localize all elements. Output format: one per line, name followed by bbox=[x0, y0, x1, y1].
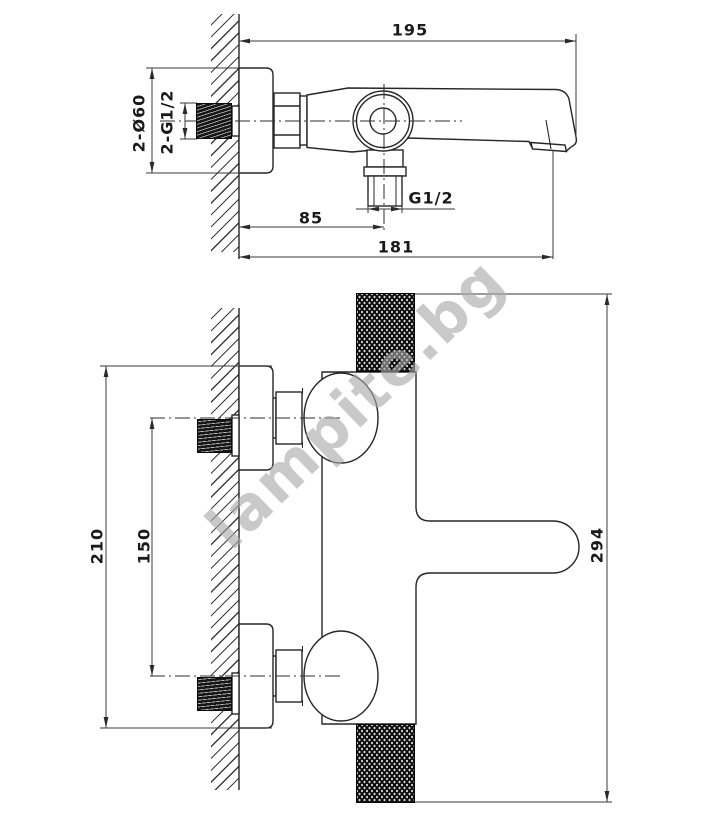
dim-label-inlet-thread: 2-G1/2 bbox=[158, 89, 177, 154]
connector-neck-bottom bbox=[272, 656, 276, 696]
aerator-tick bbox=[546, 120, 551, 149]
valve-cap-hole bbox=[370, 108, 396, 134]
escutcheon-front-top bbox=[239, 366, 273, 470]
escutcheon-front-bottom bbox=[239, 624, 273, 728]
arrowhead bbox=[605, 791, 610, 802]
dim-label-inlet-spacing: 150 bbox=[135, 528, 154, 564]
ball-joint-top bbox=[304, 373, 378, 463]
dim-label-outlet-offset: 85 bbox=[299, 209, 323, 228]
knurled-handle-bottom bbox=[356, 724, 415, 803]
ball-joint-bottom bbox=[304, 631, 378, 721]
connector-neck-top bbox=[272, 398, 276, 438]
inlet-nipple-front-bottom bbox=[197, 677, 232, 711]
connector-block-bottom bbox=[276, 650, 302, 702]
front-view-object bbox=[232, 308, 579, 790]
aerator bbox=[531, 143, 567, 152]
escutcheon-side bbox=[239, 68, 273, 173]
arrowhead bbox=[183, 103, 188, 114]
dim-label-outlet-thread: G1/2 bbox=[408, 189, 453, 208]
arrowhead bbox=[150, 418, 155, 429]
arrowhead bbox=[104, 366, 109, 377]
arrowhead bbox=[183, 128, 188, 139]
arrowhead bbox=[150, 665, 155, 676]
arrowhead bbox=[239, 39, 250, 44]
spout-body bbox=[307, 88, 576, 152]
dim-label-total-projection: 195 bbox=[392, 21, 428, 40]
eccentric-nut bbox=[274, 93, 300, 148]
arrowhead bbox=[239, 255, 250, 260]
inlet-nipple-side bbox=[196, 103, 232, 139]
technical-drawing-canvas: 195 85 181 G1/2 2-Ø60 2-G1/2 210 150 294… bbox=[0, 0, 705, 835]
dim-label-escutcheon-diameter: 2-Ø60 bbox=[130, 94, 149, 153]
arrowhead bbox=[150, 162, 155, 173]
knurled-handle-top bbox=[356, 293, 415, 372]
valve-cap-ring bbox=[357, 95, 410, 148]
outlet-flange bbox=[364, 167, 406, 176]
arrowhead bbox=[239, 225, 250, 230]
valve-cap-outer bbox=[353, 91, 413, 151]
dimension-arrows bbox=[104, 39, 610, 802]
connector-block-top bbox=[276, 392, 302, 444]
arrowhead bbox=[542, 255, 553, 260]
side-view-object bbox=[232, 14, 576, 259]
dim-label-body-length: 294 bbox=[588, 527, 607, 563]
dim-label-spout-reach: 181 bbox=[378, 238, 414, 257]
body-bar bbox=[322, 372, 579, 724]
faucet-linework bbox=[0, 0, 705, 835]
arrowhead bbox=[391, 207, 402, 212]
wall-hatch-front-view bbox=[211, 308, 239, 790]
arrowhead bbox=[605, 294, 610, 305]
dimension-lines bbox=[100, 34, 612, 802]
arrowhead bbox=[373, 225, 384, 230]
inlet-nipple-front-top bbox=[197, 419, 232, 453]
outlet-pipe bbox=[368, 176, 402, 206]
arrowhead bbox=[368, 207, 379, 212]
dim-label-escutcheon-span: 210 bbox=[88, 528, 107, 564]
connector-plate bbox=[300, 96, 307, 145]
outlet-neck bbox=[367, 150, 403, 167]
arrowhead bbox=[565, 39, 576, 44]
arrowhead bbox=[150, 68, 155, 79]
arrowhead bbox=[104, 717, 109, 728]
centerlines bbox=[150, 84, 462, 676]
